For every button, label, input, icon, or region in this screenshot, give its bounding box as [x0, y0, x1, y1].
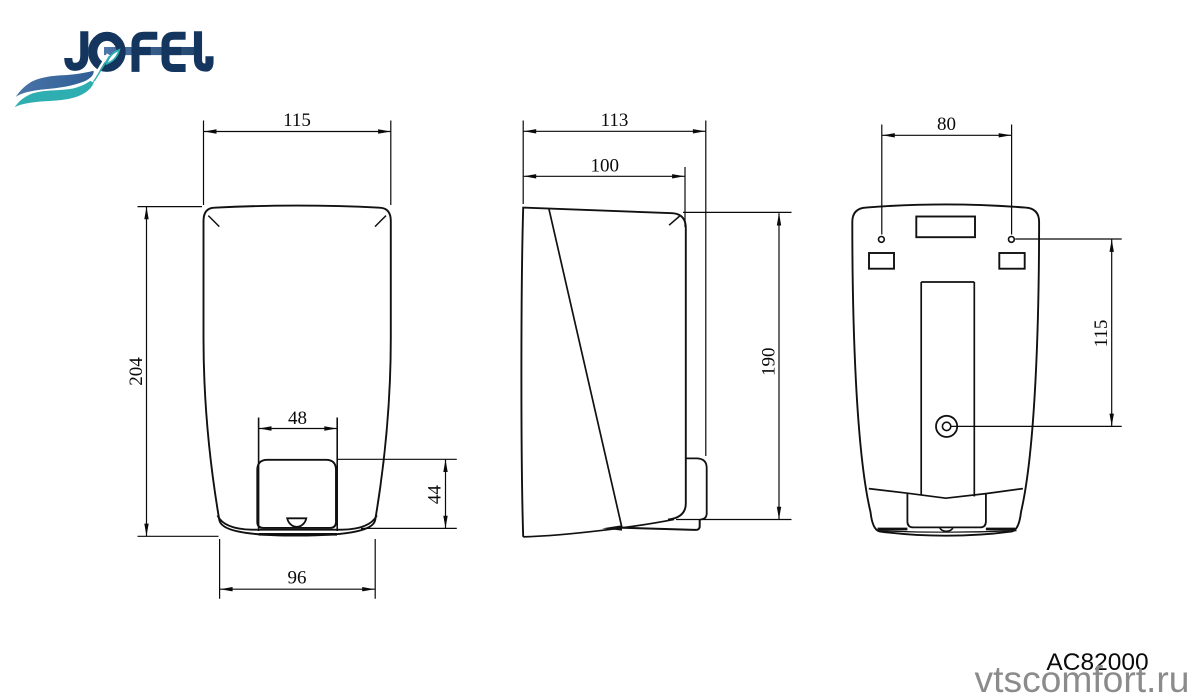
svg-text:80: 80	[937, 114, 956, 135]
svg-text:vtscomfort.ru: vtscomfort.ru	[975, 658, 1190, 700]
svg-text:190: 190	[759, 348, 780, 377]
svg-text:44: 44	[425, 485, 446, 505]
svg-text:115: 115	[283, 110, 311, 131]
svg-text:115: 115	[1091, 320, 1112, 348]
svg-text:48: 48	[288, 408, 307, 429]
svg-text:113: 113	[601, 110, 629, 131]
svg-text:96: 96	[288, 568, 307, 589]
svg-text:204: 204	[126, 357, 147, 386]
svg-text:100: 100	[590, 156, 619, 177]
